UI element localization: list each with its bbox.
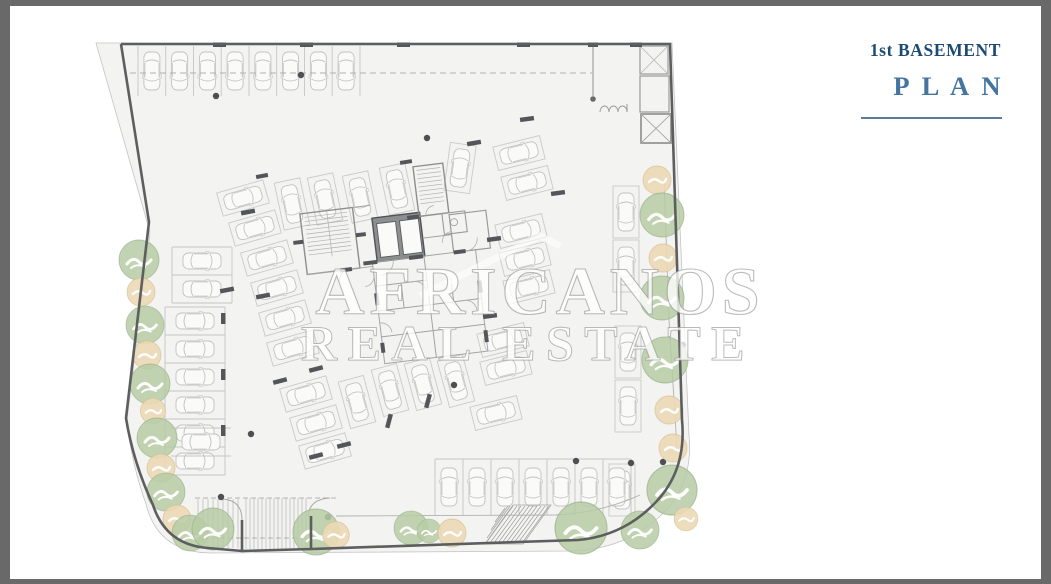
svg-text:P L A N: P L A N — [893, 71, 1004, 101]
svg-text:1st BASEMENT: 1st BASEMENT — [870, 40, 1001, 60]
svg-text:REAL ESTATE: REAL ESTATE — [301, 315, 755, 371]
